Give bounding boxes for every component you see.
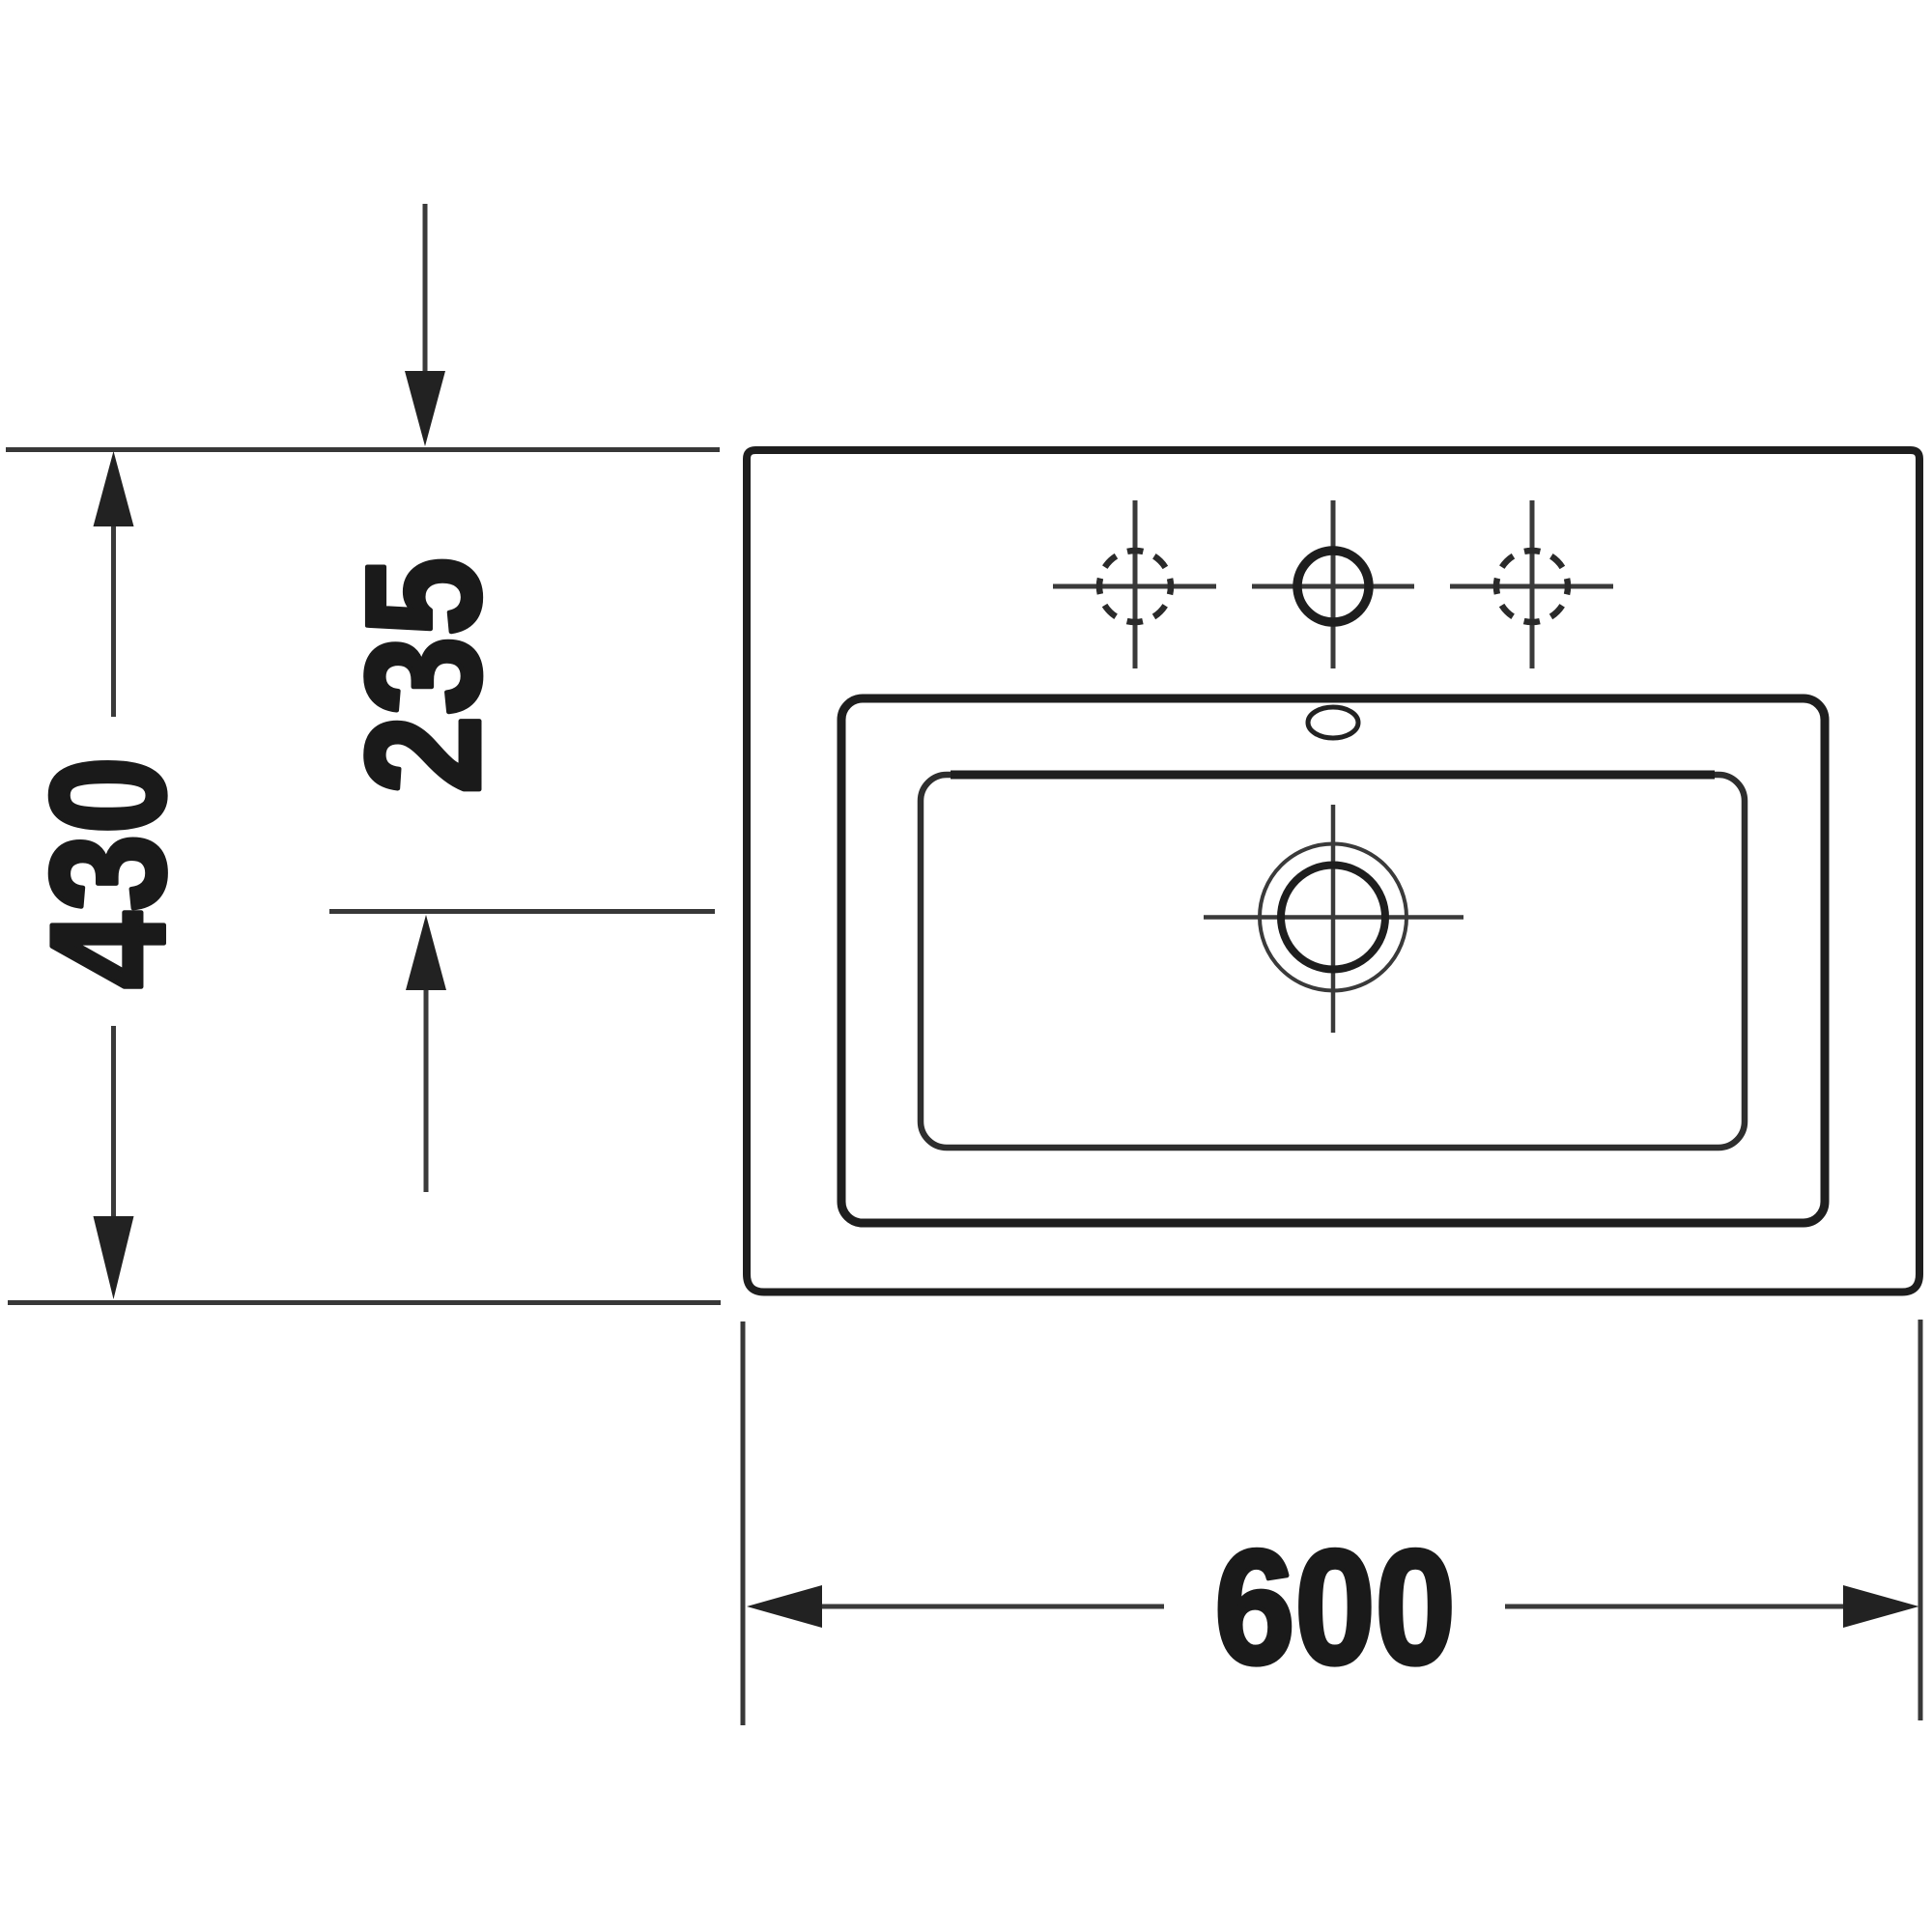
svg-text:235: 235 (333, 557, 514, 795)
svg-text:600: 600 (1214, 1516, 1455, 1697)
svg-text:430: 430 (17, 756, 199, 988)
